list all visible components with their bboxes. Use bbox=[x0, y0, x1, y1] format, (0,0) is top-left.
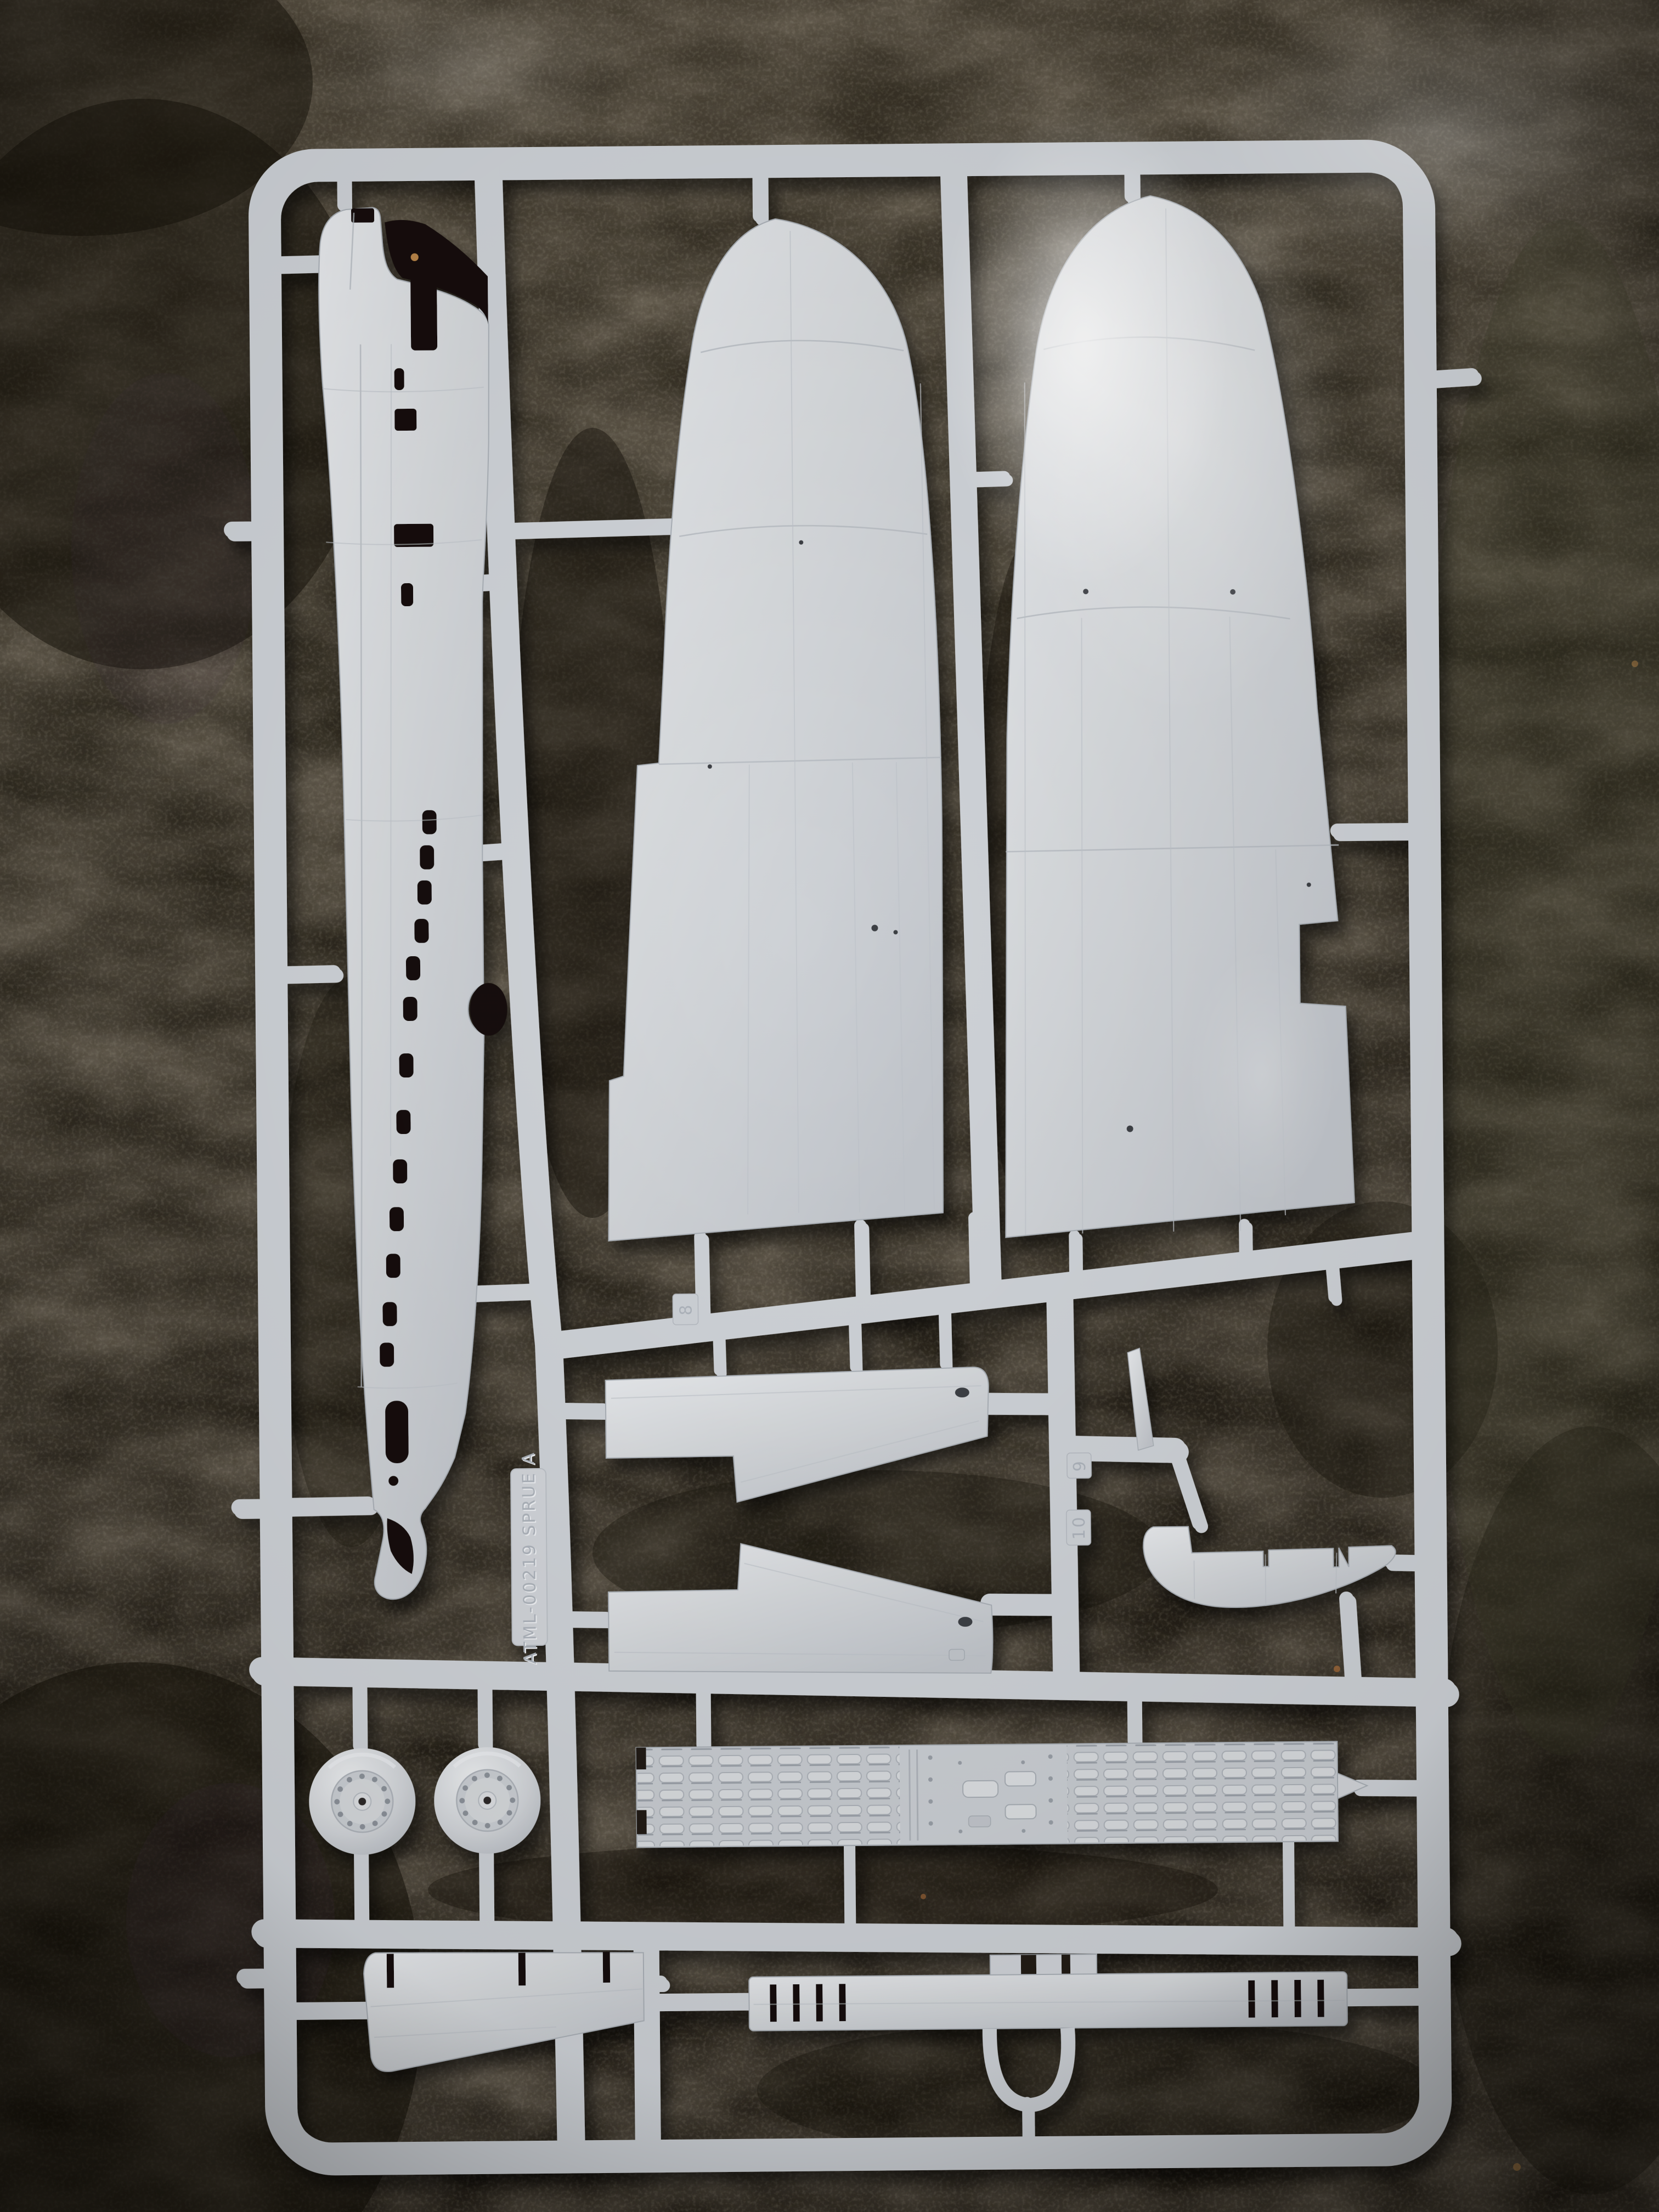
vignette bbox=[0, 0, 1659, 2212]
sprue-photo-canvas: 8 9 10 ATML-00219 SPRUE A ATML-00219 SPR… bbox=[0, 0, 1659, 2212]
photo-model-kit-sprue: 8 9 10 ATML-00219 SPRUE A ATML-00219 SPR… bbox=[0, 0, 1659, 2212]
